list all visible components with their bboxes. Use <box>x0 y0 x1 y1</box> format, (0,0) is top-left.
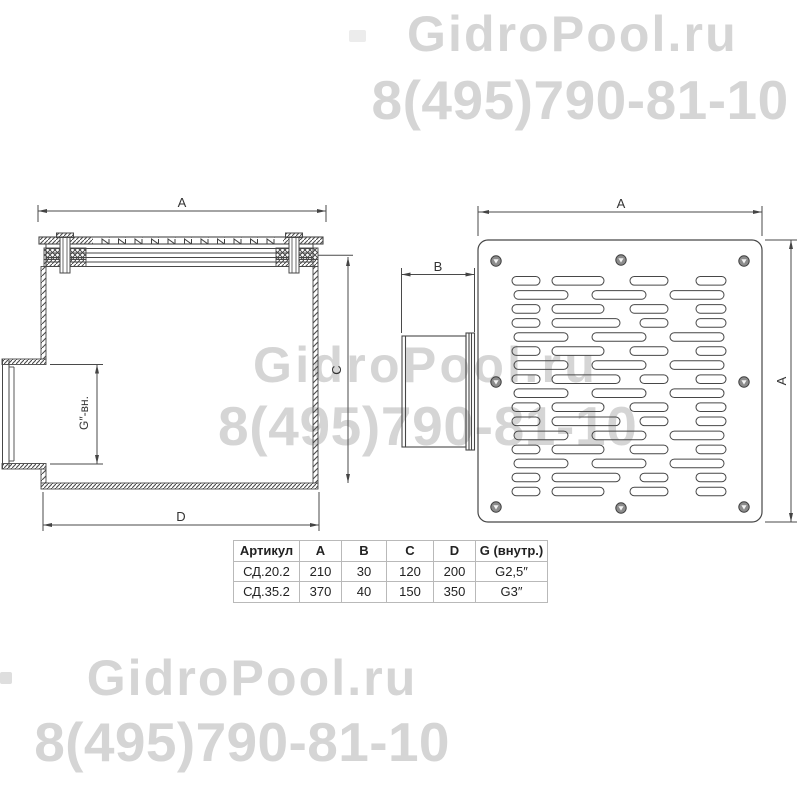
svg-text:A: A <box>178 195 187 210</box>
svg-text:G″-вн.: G″-вн. <box>77 396 91 430</box>
svg-text:B: B <box>434 259 443 274</box>
svg-text:A: A <box>774 376 789 385</box>
svg-text:C: C <box>329 365 344 374</box>
svg-text:A: A <box>617 196 626 211</box>
svg-text:D: D <box>176 509 185 524</box>
